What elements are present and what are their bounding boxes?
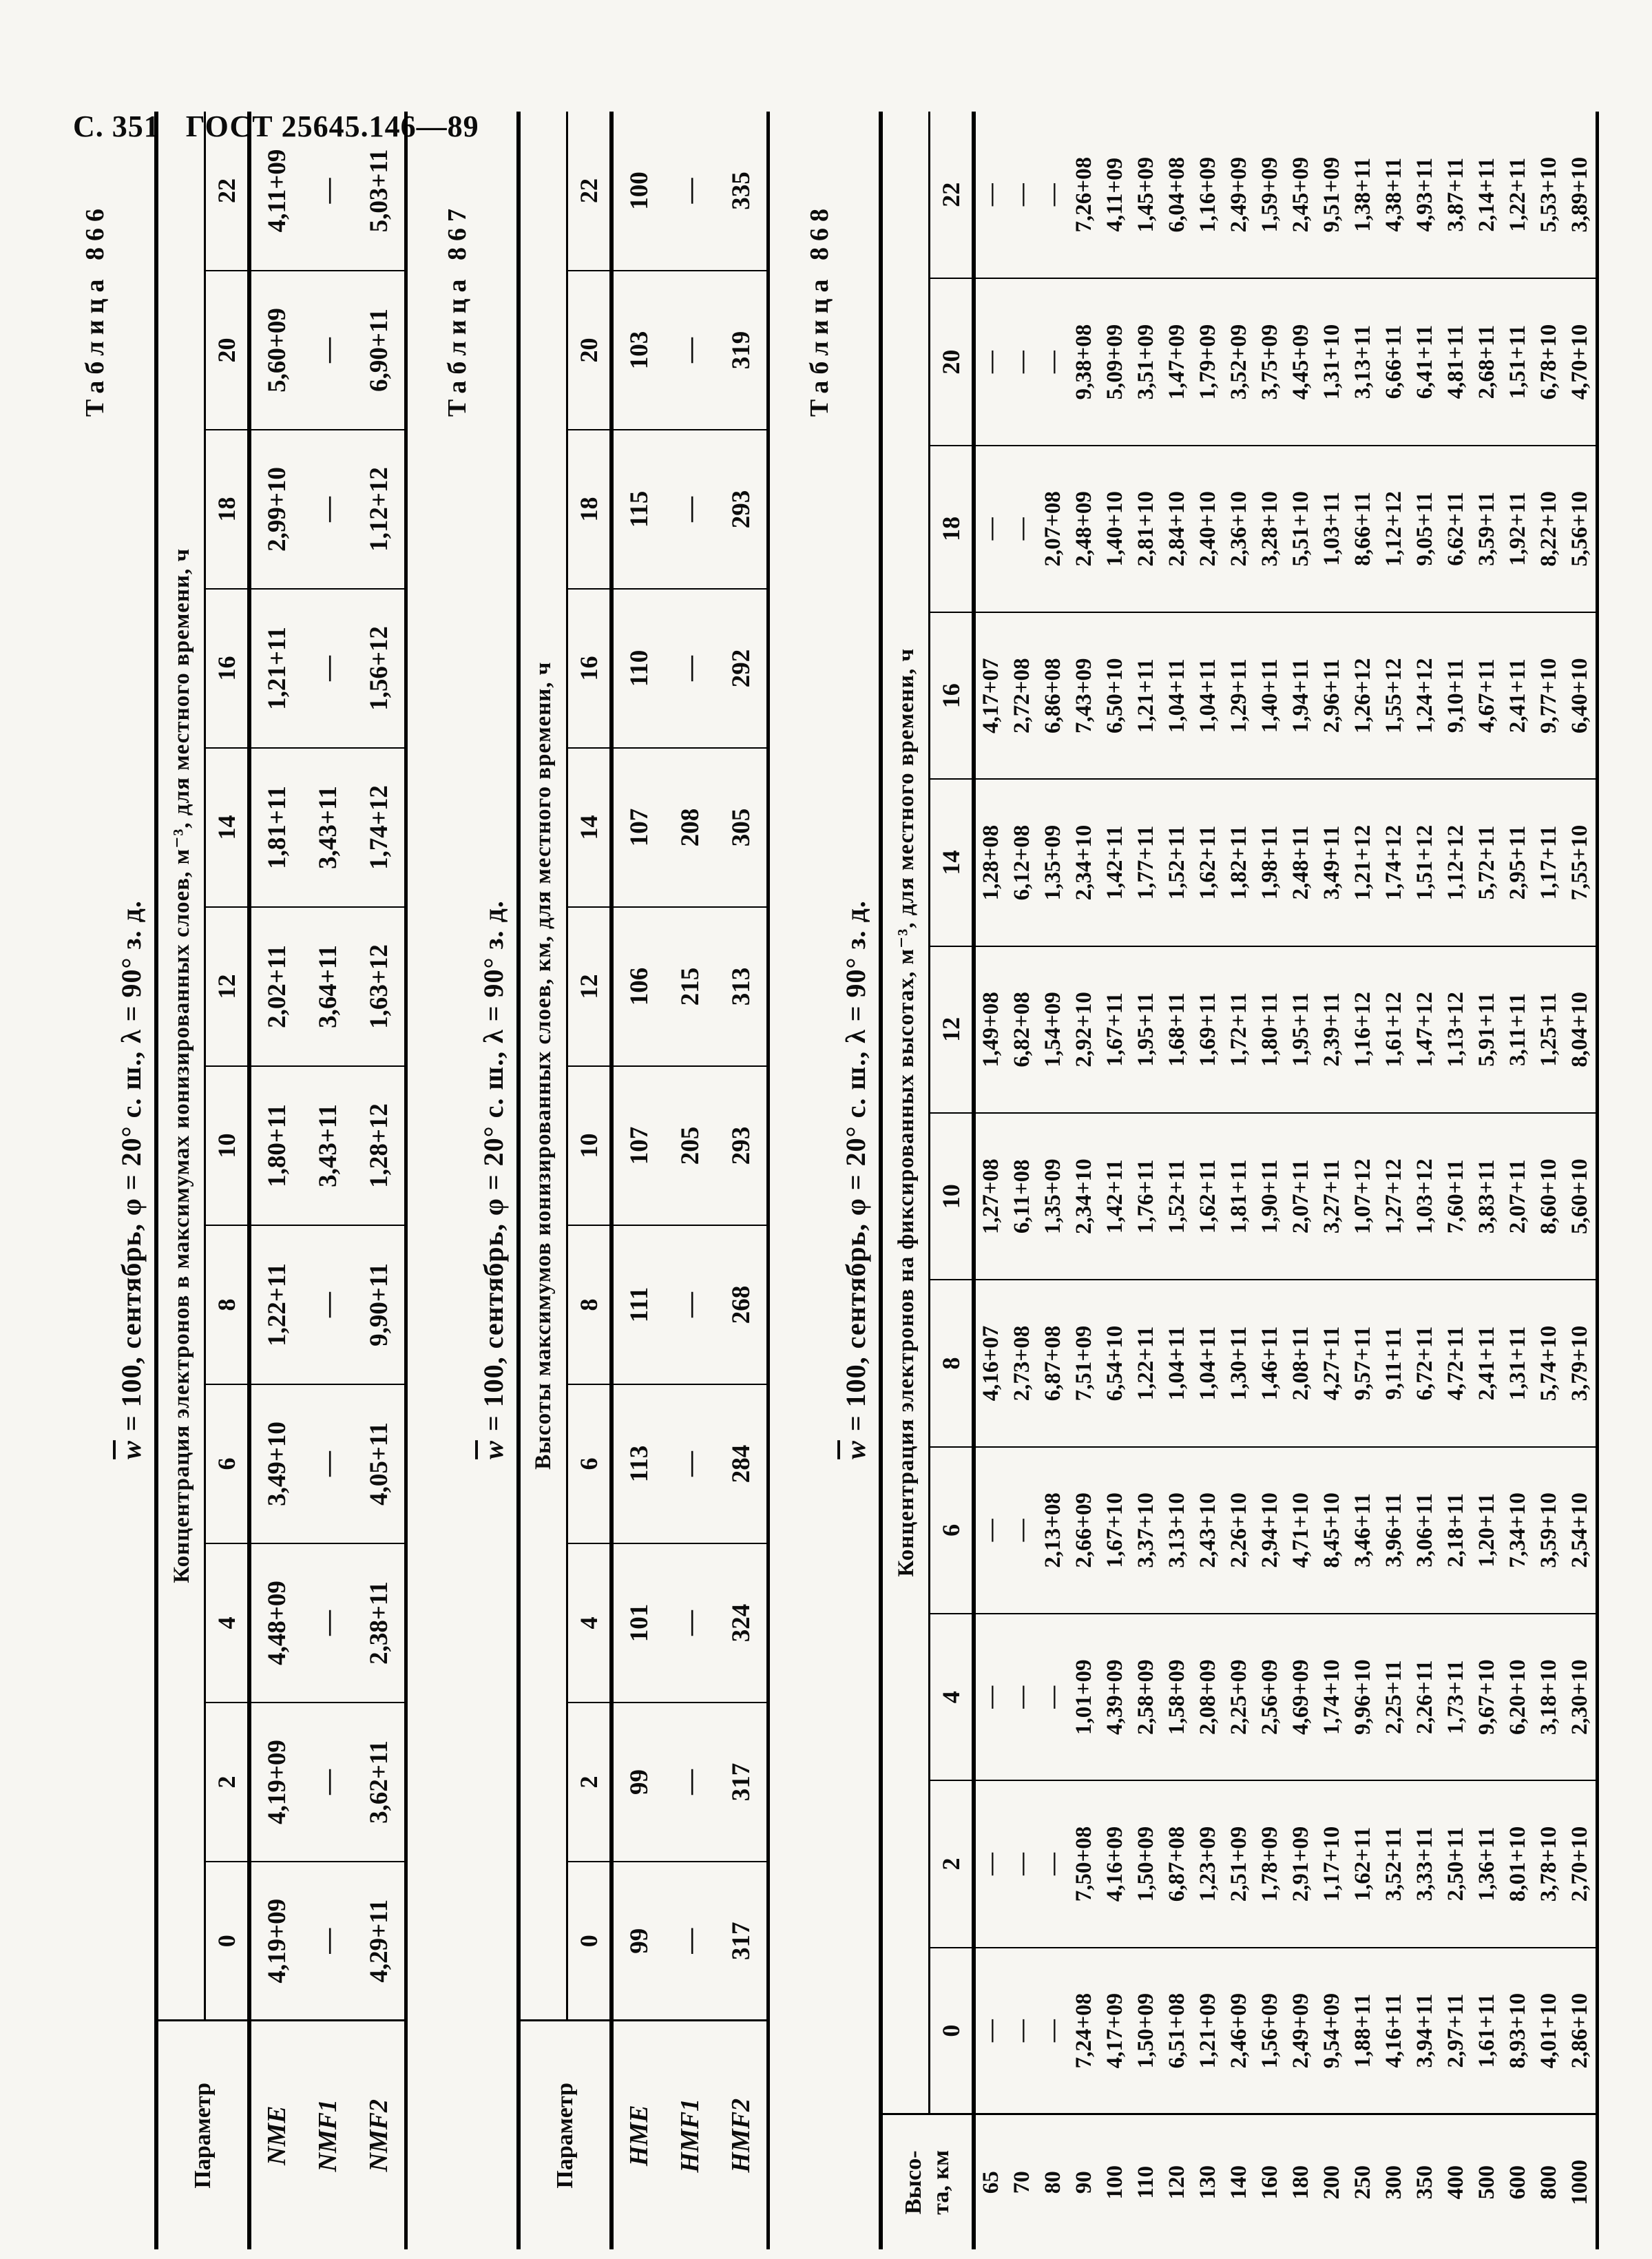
hour-header: 0 — [567, 1862, 612, 2021]
param-cell: 200 — [1317, 2114, 1348, 2249]
hour-header: 2 — [930, 1780, 974, 1947]
hour-header: 2 — [205, 1703, 250, 1862]
table-row: HME9999101113111107106107110115103100 — [611, 112, 665, 2249]
value-cell: 1,22+11 — [249, 1225, 302, 1384]
value-cell: 8,66+11 — [1348, 446, 1379, 612]
value-cell: 2,72+08 — [1007, 612, 1038, 779]
value-cell: 2,73+08 — [1007, 1280, 1038, 1446]
param-cell: 90 — [1069, 2114, 1100, 2249]
value-cell: — — [1007, 1447, 1038, 1614]
value-cell: 2,70+10 — [1565, 1780, 1598, 1947]
value-cell: 313 — [715, 907, 769, 1066]
param-column-header: Параметр — [519, 2021, 611, 2249]
value-cell: — — [1007, 1948, 1038, 2114]
value-cell: 7,34+10 — [1503, 1447, 1534, 1614]
value-cell: 6,40+10 — [1565, 612, 1598, 779]
value-cell: 2,94+10 — [1255, 1447, 1286, 1614]
param-cell: 800 — [1534, 2114, 1565, 2249]
value-cell: 1,47+12 — [1410, 946, 1441, 1113]
value-cell: 2,43+10 — [1193, 1447, 1224, 1614]
value-cell: — — [1038, 278, 1069, 445]
value-cell: 1,80+11 — [249, 1066, 302, 1225]
value-cell: — — [1007, 1780, 1038, 1947]
value-cell: 1,67+10 — [1100, 1447, 1131, 1614]
table-866-title-text: = 100, сентябрь, φ = 20° с. ш., λ = 90° … — [116, 900, 147, 1439]
value-cell: — — [302, 589, 353, 748]
value-cell: 2,36+10 — [1224, 446, 1255, 612]
value-cell: 6,50+10 — [1100, 612, 1131, 779]
value-cell: 3,37+10 — [1131, 1447, 1162, 1614]
value-cell: 3,49+11 — [1317, 779, 1348, 946]
fixed-heights-concentration-table: Высо-та, кмКонцентрация электронов на фи… — [879, 112, 1599, 2249]
value-cell: — — [302, 430, 353, 589]
table-row: 1004,17+094,16+094,39+091,67+106,54+101,… — [1100, 112, 1131, 2249]
value-cell: 2,49+09 — [1224, 112, 1255, 278]
hour-header: 22 — [567, 112, 612, 271]
value-cell: 1,67+11 — [1100, 946, 1131, 1113]
hour-header: 0 — [205, 1862, 250, 2021]
value-cell: 1,81+11 — [249, 748, 302, 907]
value-cell: 2,50+11 — [1441, 1780, 1472, 1947]
table-row: NMF24,29+113,62+112,38+114,05+119,90+111… — [353, 112, 406, 2249]
value-cell: 9,10+11 — [1441, 612, 1472, 779]
value-cell: 2,13+08 — [1038, 1447, 1069, 1614]
value-cell: 5,91+11 — [1472, 946, 1503, 1113]
table-row: 10002,86+102,70+102,30+102,54+103,79+105… — [1565, 112, 1598, 2249]
value-cell: — — [302, 112, 353, 271]
value-cell: 1,45+09 — [1131, 112, 1162, 278]
w-index-symbol: w — [478, 1439, 509, 1459]
value-cell: 1,56+12 — [353, 589, 406, 748]
value-cell: 317 — [715, 1703, 769, 1862]
param-cell: 250 — [1348, 2114, 1379, 2249]
value-cell: 6,20+10 — [1503, 1614, 1534, 1780]
value-cell: 8,22+10 — [1534, 446, 1565, 612]
value-cell: 6,87+08 — [1162, 1780, 1193, 1947]
hour-header: 20 — [930, 278, 974, 445]
value-cell: 6,04+08 — [1162, 112, 1193, 278]
value-cell: 2,30+10 — [1565, 1614, 1598, 1780]
table-row: 4002,97+112,50+111,73+112,18+114,72+117,… — [1441, 112, 1472, 2249]
hour-header: 22 — [930, 112, 974, 278]
value-cell: 4,70+10 — [1565, 278, 1598, 445]
value-cell: 1,01+09 — [1069, 1614, 1100, 1780]
value-cell: 1,42+11 — [1100, 1113, 1131, 1280]
value-cell: 5,56+10 — [1565, 446, 1598, 612]
value-cell: 2,34+10 — [1069, 1113, 1100, 1280]
table-866-section: Таблица 866 w = 100, сентябрь, φ = 20° с… — [77, 101, 408, 2259]
param-cell: 100 — [1100, 2114, 1131, 2249]
hour-header: 16 — [567, 589, 612, 748]
value-cell: 2,48+11 — [1286, 779, 1317, 946]
table-row: 1402,46+092,51+092,25+092,26+101,30+111,… — [1224, 112, 1255, 2249]
value-cell: 1,35+09 — [1038, 1113, 1069, 1280]
value-cell: 6,82+08 — [1007, 946, 1038, 1113]
value-cell: 2,41+11 — [1503, 612, 1534, 779]
value-cell: 3,79+10 — [1565, 1280, 1598, 1446]
value-cell: 2,58+09 — [1131, 1614, 1162, 1780]
table-row: HMF1—————205215208———— — [665, 112, 715, 2249]
value-cell: 1,31+11 — [1503, 1280, 1534, 1446]
value-cell: 3,28+10 — [1255, 446, 1286, 612]
hour-header: 4 — [205, 1543, 250, 1703]
value-cell: 3,96+11 — [1379, 1447, 1410, 1614]
value-cell: 1,73+11 — [1441, 1614, 1472, 1780]
value-cell: 2,49+09 — [1286, 1948, 1317, 2114]
value-cell: 2,07+08 — [1038, 446, 1069, 612]
value-cell: 3,18+10 — [1534, 1614, 1565, 1780]
value-cell: 3,13+10 — [1162, 1447, 1193, 1614]
value-cell: 1,81+11 — [1224, 1113, 1255, 1280]
value-cell: 1,28+12 — [353, 1066, 406, 1225]
value-cell: 4,05+11 — [353, 1384, 406, 1543]
value-cell: 3,43+11 — [302, 748, 353, 907]
value-cell: — — [302, 1225, 353, 1384]
param-cell: HME — [611, 2021, 665, 2249]
value-cell: 1,42+11 — [1100, 779, 1131, 946]
param-cell: HMF2 — [715, 2021, 769, 2249]
value-cell: 1,74+12 — [353, 748, 406, 907]
value-cell: 99 — [611, 1703, 665, 1862]
landscape-canvas: Таблица 866 w = 100, сентябрь, φ = 20° с… — [77, 101, 1628, 2259]
value-cell: 1,17+10 — [1317, 1780, 1348, 1947]
hour-header: 16 — [930, 612, 974, 779]
value-cell: 1,21+09 — [1193, 1948, 1224, 2114]
value-cell: 4,19+09 — [249, 1862, 302, 2021]
value-cell: 3,75+09 — [1255, 278, 1286, 445]
value-cell: — — [665, 1384, 715, 1543]
value-cell: — — [1007, 1614, 1038, 1780]
hour-header: 4 — [567, 1543, 612, 1703]
value-cell: — — [665, 1703, 715, 1862]
value-cell: — — [1038, 1614, 1069, 1780]
value-cell: 9,05+11 — [1410, 446, 1441, 612]
value-cell: 9,11+11 — [1379, 1280, 1410, 1446]
peak-heights-table: ПараметрВысоты максимумов ионизированных… — [516, 112, 770, 2249]
value-cell: 2,97+11 — [1441, 1948, 1472, 2114]
hour-header: 6 — [567, 1384, 612, 1543]
param-cell: 1000 — [1565, 2114, 1598, 2249]
value-cell: 3,43+11 — [302, 1066, 353, 1225]
value-cell: 2,91+09 — [1286, 1780, 1317, 1947]
value-cell: 6,72+11 — [1410, 1280, 1441, 1446]
value-cell: 1,62+11 — [1193, 779, 1224, 946]
value-cell: 6,62+11 — [1441, 446, 1472, 612]
value-cell: 1,62+11 — [1348, 1780, 1379, 1947]
value-cell: 2,45+09 — [1286, 112, 1317, 278]
value-cell: 1,88+11 — [1348, 1948, 1379, 2114]
value-cell: 1,21+12 — [1348, 779, 1379, 946]
value-cell: 1,27+08 — [974, 1113, 1007, 1280]
value-cell: 5,53+10 — [1534, 112, 1565, 278]
hour-header: 10 — [930, 1113, 974, 1280]
table-866-title: w = 100, сентябрь, φ = 20° с. ш., λ = 90… — [113, 101, 150, 2259]
value-cell: 6,41+11 — [1410, 278, 1441, 445]
value-cell: 2,48+09 — [1069, 446, 1100, 612]
hour-header: 8 — [930, 1280, 974, 1446]
table-row: 3503,94+113,33+112,26+113,06+116,72+111,… — [1410, 112, 1441, 2249]
hour-header: 14 — [205, 748, 250, 907]
value-cell: 7,60+11 — [1441, 1113, 1472, 1280]
hour-header: 2 — [567, 1703, 612, 1862]
param-cell: 140 — [1224, 2114, 1255, 2249]
value-cell: 1,95+11 — [1286, 946, 1317, 1113]
hour-header: 12 — [567, 907, 612, 1066]
value-cell: 1,22+11 — [1131, 1280, 1162, 1446]
value-cell: 1,16+09 — [1193, 112, 1224, 278]
hour-header: 12 — [930, 946, 974, 1113]
value-cell: 317 — [715, 1862, 769, 2021]
value-cell: 8,45+10 — [1317, 1447, 1348, 1614]
rotated-content-area: Таблица 866 w = 100, сентябрь, φ = 20° с… — [77, 101, 1628, 2259]
value-cell: 2,96+11 — [1317, 612, 1348, 779]
table-row: 3004,16+113,52+112,25+113,96+119,11+111,… — [1379, 112, 1410, 2249]
value-cell: 1,50+09 — [1131, 1780, 1162, 1947]
value-cell: 4,17+09 — [1100, 1948, 1131, 2114]
value-cell: 106 — [611, 907, 665, 1066]
value-cell: 5,60+10 — [1565, 1113, 1598, 1280]
value-cell: — — [1038, 1948, 1069, 2114]
value-cell: 1,78+09 — [1255, 1780, 1286, 1947]
value-cell: 1,98+11 — [1255, 779, 1286, 946]
param-column-header: Высо-та, км — [881, 2114, 974, 2249]
value-cell: 9,57+11 — [1348, 1280, 1379, 1446]
value-cell: 6,86+08 — [1038, 612, 1069, 779]
table-row: NME4,19+094,19+094,48+093,49+101,22+111,… — [249, 112, 302, 2249]
value-cell: 3,78+10 — [1534, 1780, 1565, 1947]
value-cell: 7,43+09 — [1069, 612, 1100, 779]
value-cell: 4,29+11 — [353, 1862, 406, 2021]
value-cell: 6,51+08 — [1162, 1948, 1193, 2114]
value-cell: 1,62+11 — [1193, 1113, 1224, 1280]
value-cell: 1,36+11 — [1472, 1780, 1503, 1947]
value-cell: 2,86+10 — [1565, 1948, 1598, 2114]
value-cell: 3,94+11 — [1410, 1948, 1441, 2114]
value-cell: — — [665, 1543, 715, 1703]
value-cell: 1,49+08 — [974, 946, 1007, 1113]
value-cell: 2,56+09 — [1255, 1614, 1286, 1780]
value-cell: 1,27+12 — [1379, 1113, 1410, 1280]
value-cell: 4,16+09 — [1100, 1780, 1131, 1947]
value-cell: 1,61+12 — [1379, 946, 1410, 1113]
table-row: 5001,61+111,36+119,67+101,20+112,41+113,… — [1472, 112, 1503, 2249]
value-cell: 1,80+11 — [1255, 946, 1286, 1113]
value-cell: 2,92+10 — [1069, 946, 1100, 1113]
hour-header: 6 — [930, 1447, 974, 1614]
table-row: NMF1—————3,43+113,64+113,43+11———— — [302, 112, 353, 2249]
value-cell: — — [302, 1862, 353, 2021]
value-cell: 292 — [715, 589, 769, 748]
value-cell: 2,66+09 — [1069, 1447, 1100, 1614]
value-cell: — — [1038, 1780, 1069, 1947]
value-cell: 1,29+11 — [1224, 612, 1255, 779]
value-cell: 293 — [715, 1066, 769, 1225]
value-cell: 110 — [611, 589, 665, 748]
value-cell: 1,95+11 — [1131, 946, 1162, 1113]
value-cell: 1,16+12 — [1348, 946, 1379, 1113]
value-cell: 3,62+11 — [353, 1703, 406, 1862]
value-cell: 1,21+11 — [1131, 612, 1162, 779]
value-cell: 1,58+09 — [1162, 1614, 1193, 1780]
value-cell: 2,18+11 — [1441, 1447, 1472, 1614]
param-cell: 400 — [1441, 2114, 1472, 2249]
table-867-label: Таблица 867 — [439, 101, 475, 2259]
value-cell: 6,90+11 — [353, 271, 406, 430]
hour-header: 14 — [930, 779, 974, 946]
span-header: Высоты максимумов ионизированных слоев, … — [519, 112, 567, 2021]
value-cell: 4,72+11 — [1441, 1280, 1472, 1446]
value-cell: 1,47+09 — [1162, 278, 1193, 445]
value-cell: 1,74+12 — [1379, 779, 1410, 946]
value-cell: 3,49+10 — [249, 1384, 302, 1543]
value-cell: 9,96+10 — [1348, 1614, 1379, 1780]
value-cell: 4,45+09 — [1286, 278, 1317, 445]
value-cell: 2,02+11 — [249, 907, 302, 1066]
value-cell: 5,74+10 — [1534, 1280, 1565, 1446]
value-cell: 2,07+11 — [1286, 1113, 1317, 1280]
value-cell: 2,38+11 — [353, 1543, 406, 1703]
w-index-symbol: w — [116, 1439, 147, 1459]
hour-header: 12 — [205, 907, 250, 1066]
value-cell: 2,34+10 — [1069, 779, 1100, 946]
param-cell: HMF1 — [665, 2021, 715, 2249]
hour-header: 16 — [205, 589, 250, 748]
value-cell: — — [974, 1614, 1007, 1780]
value-cell: 1,68+11 — [1162, 946, 1193, 1113]
value-cell: 1,46+11 — [1255, 1280, 1286, 1446]
hour-header: 14 — [567, 748, 612, 907]
value-cell: 1,79+09 — [1193, 278, 1224, 445]
value-cell: — — [1007, 278, 1038, 445]
value-cell: 1,30+11 — [1224, 1280, 1255, 1446]
value-cell: 4,81+11 — [1441, 278, 1472, 445]
value-cell: — — [974, 112, 1007, 278]
value-cell: 103 — [611, 271, 665, 430]
value-cell: 1,54+09 — [1038, 946, 1069, 1113]
hour-header: 10 — [205, 1066, 250, 1225]
param-cell: NMF1 — [302, 2021, 353, 2249]
value-cell: 1,61+11 — [1472, 1948, 1503, 2114]
value-cell: 2,39+11 — [1317, 946, 1348, 1113]
value-cell: — — [665, 430, 715, 589]
table-866-label: Таблица 866 — [77, 101, 113, 2259]
value-cell: 9,51+09 — [1317, 112, 1348, 278]
value-cell: 4,38+11 — [1379, 112, 1410, 278]
w-index-symbol: w — [840, 1439, 871, 1459]
table-row: 65————4,16+071,27+081,49+081,28+084,17+0… — [974, 112, 1007, 2249]
table-row: 907,24+087,50+081,01+092,66+097,51+092,3… — [1069, 112, 1100, 2249]
value-cell: — — [665, 589, 715, 748]
value-cell: 1,56+09 — [1255, 1948, 1286, 2114]
value-cell: 3,13+11 — [1348, 278, 1379, 445]
value-cell: 4,71+10 — [1286, 1447, 1317, 1614]
param-cell: 160 — [1255, 2114, 1286, 2249]
value-cell: 1,13+12 — [1441, 946, 1472, 1113]
value-cell: 305 — [715, 748, 769, 907]
value-cell: 5,60+09 — [249, 271, 302, 430]
value-cell: 3,51+09 — [1131, 278, 1162, 445]
value-cell: 1,52+11 — [1162, 779, 1193, 946]
value-cell: 1,24+12 — [1410, 612, 1441, 779]
value-cell: 8,93+10 — [1503, 1948, 1534, 2114]
value-cell: 3,46+11 — [1348, 1447, 1379, 1614]
value-cell: 4,69+09 — [1286, 1614, 1317, 1780]
value-cell: 8,01+10 — [1503, 1780, 1534, 1947]
param-cell: 120 — [1162, 2114, 1193, 2249]
value-cell: 205 — [665, 1066, 715, 1225]
value-cell: 7,50+08 — [1069, 1780, 1100, 1947]
value-cell: 1,20+11 — [1472, 1447, 1503, 1614]
param-cell: 350 — [1410, 2114, 1441, 2249]
value-cell: 2,84+10 — [1162, 446, 1193, 612]
value-cell: 9,77+10 — [1534, 612, 1565, 779]
value-cell: — — [302, 1543, 353, 1703]
value-cell: 1,82+11 — [1224, 779, 1255, 946]
table-row: 6008,93+108,01+106,20+107,34+101,31+112,… — [1503, 112, 1534, 2249]
value-cell: 2,08+09 — [1193, 1614, 1224, 1780]
table-867-title-text: = 100, сентябрь, φ = 20° с. ш., λ = 90° … — [478, 900, 509, 1439]
value-cell: 1,92+11 — [1503, 446, 1534, 612]
value-cell: 2,81+10 — [1131, 446, 1162, 612]
value-cell: 335 — [715, 112, 769, 271]
value-cell: 4,17+07 — [974, 612, 1007, 779]
value-cell: 2,26+11 — [1410, 1614, 1441, 1780]
param-cell: 70 — [1007, 2114, 1038, 2249]
value-cell: 268 — [715, 1225, 769, 1384]
table-row: 1601,56+091,78+092,56+092,94+101,46+111,… — [1255, 112, 1286, 2249]
value-cell: 2,25+11 — [1379, 1614, 1410, 1780]
value-cell: 1,94+11 — [1286, 612, 1317, 779]
value-cell: 293 — [715, 430, 769, 589]
value-cell: 1,23+09 — [1193, 1780, 1224, 1947]
value-cell: 3,59+10 — [1534, 1447, 1565, 1614]
value-cell: 2,99+10 — [249, 430, 302, 589]
hour-header: 8 — [205, 1225, 250, 1384]
param-column-header: Параметр — [156, 2021, 249, 2249]
value-cell: — — [1007, 112, 1038, 278]
value-cell: 324 — [715, 1543, 769, 1703]
value-cell: 1,76+11 — [1131, 1113, 1162, 1280]
value-cell: 2,07+11 — [1503, 1113, 1534, 1280]
value-cell: 1,12+12 — [1441, 779, 1472, 946]
value-cell: 5,51+10 — [1286, 446, 1317, 612]
value-cell: 6,54+10 — [1100, 1280, 1131, 1446]
hour-header: 18 — [205, 430, 250, 589]
value-cell: 4,19+09 — [249, 1703, 302, 1862]
value-cell: 2,68+11 — [1472, 278, 1503, 445]
value-cell: 1,12+12 — [353, 430, 406, 589]
hour-header: 20 — [567, 271, 612, 430]
value-cell: 107 — [611, 1066, 665, 1225]
value-cell: 6,12+08 — [1007, 779, 1038, 946]
span-header: Концентрация электронов на фиксированных… — [881, 112, 930, 2114]
value-cell: 3,52+09 — [1224, 278, 1255, 445]
value-cell: 1,03+11 — [1317, 446, 1348, 612]
hour-header: 4 — [930, 1614, 974, 1780]
table-row: 1301,21+091,23+092,08+092,43+101,04+111,… — [1193, 112, 1224, 2249]
value-cell: 4,16+07 — [974, 1280, 1007, 1446]
table-row: HMF2317317324284268293313305292293319335 — [715, 112, 769, 2249]
hour-header: 6 — [205, 1384, 250, 1543]
value-cell: 4,39+09 — [1100, 1614, 1131, 1780]
value-cell: 2,26+10 — [1224, 1447, 1255, 1614]
value-cell: 3,11+11 — [1503, 946, 1534, 1113]
value-cell: 3,83+11 — [1472, 1113, 1503, 1280]
value-cell: 1,31+10 — [1317, 278, 1348, 445]
table-row: 2501,88+111,62+119,96+103,46+119,57+111,… — [1348, 112, 1379, 2249]
value-cell: — — [1038, 112, 1069, 278]
value-cell: 1,77+11 — [1131, 779, 1162, 946]
